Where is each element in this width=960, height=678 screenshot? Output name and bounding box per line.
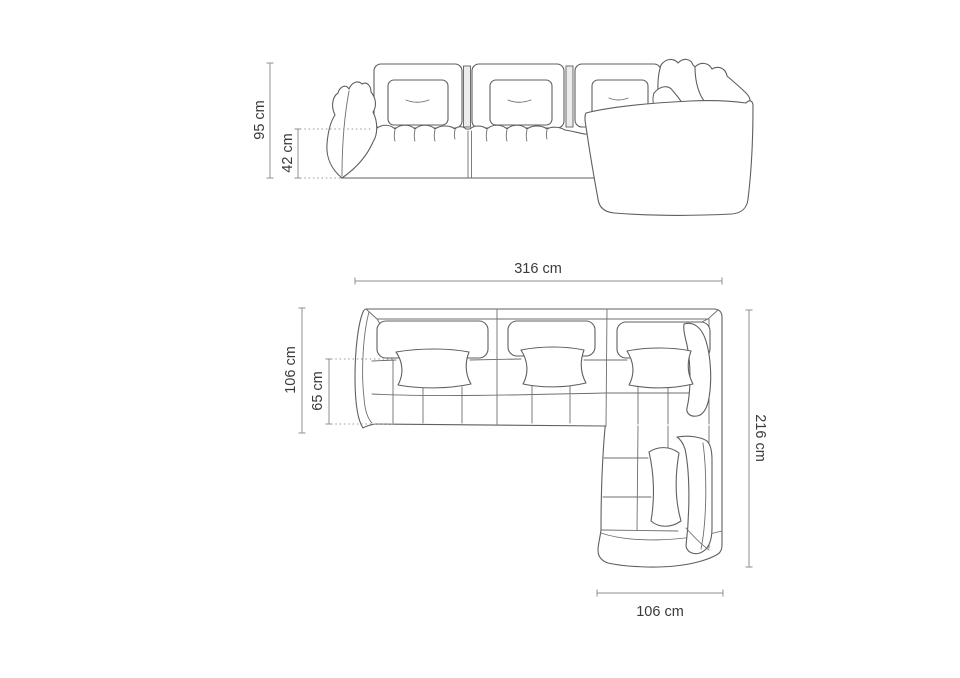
cushion-divider-2 [566,66,573,127]
cushion-divider-1 [464,66,471,127]
plan-seat-pillow-2 [521,347,586,387]
plan-seat-pillow-1 [396,349,471,388]
dim-total-height-label: 95 cm [252,100,268,140]
sofa-top-plan-drawing [355,309,722,567]
dim-chaise-width-label: 106 cm [636,604,684,620]
front-elevation-view: 95 cm 42 cm [252,59,753,215]
corner-unit-front [585,101,753,216]
dim-chaise-width: 106 cm [597,590,723,621]
dim-seat-height-label: 42 cm [280,133,296,173]
dim-total-width-label: 316 cm [514,261,562,277]
diagram-canvas: 95 cm 42 cm [0,0,960,678]
dim-total-depth-label: 216 cm [752,414,768,462]
dim-total-width: 316 cm [355,261,722,285]
top-plan-view: 316 cm 106 cm 65 cm 216 cm 106 cm [283,261,768,620]
seat-cushions [341,125,600,178]
corner-pillow-right [695,63,750,105]
plan-seat-pillow-3 [627,348,693,388]
sofa-front-elevation-drawing [327,59,753,215]
chaise-seat-pillow [649,448,681,527]
dim-total-depth: 216 cm [746,310,769,567]
dim-seat-depth-label: 65 cm [310,371,326,411]
sofa-dimension-diagram: 95 cm 42 cm [0,0,960,678]
dim-body-depth: 106 cm [283,308,306,433]
dim-body-depth-label: 106 cm [283,346,299,394]
dim-total-height: 95 cm [252,63,274,178]
